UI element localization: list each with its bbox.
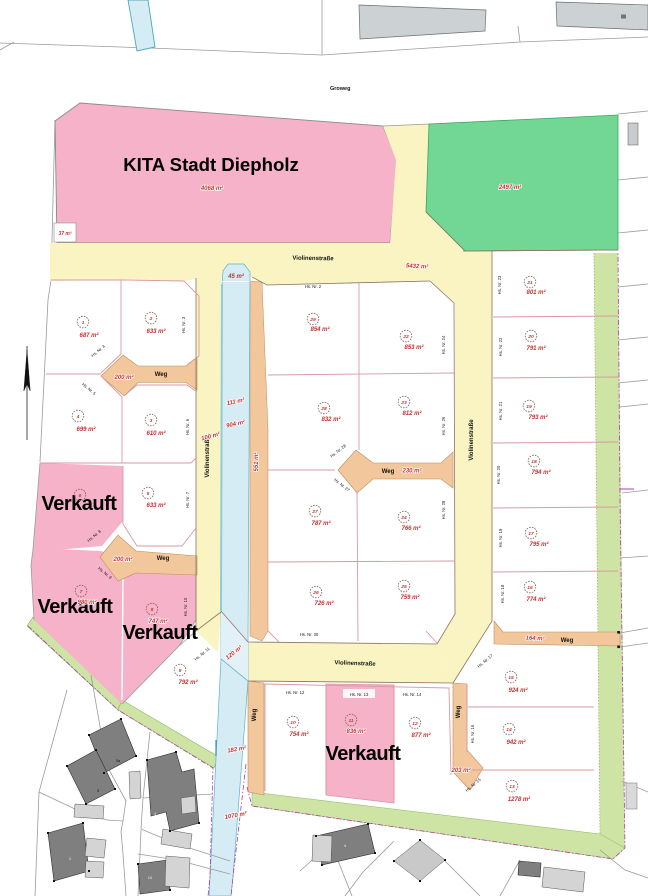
svg-text:25: 25 bbox=[400, 584, 407, 590]
svg-text:4: 4 bbox=[76, 414, 80, 420]
svg-text:980 m²: 980 m² bbox=[77, 599, 97, 606]
svg-text:8: 8 bbox=[151, 607, 154, 613]
svg-text:1278 m²: 1278 m² bbox=[508, 796, 531, 803]
svg-text:5: 5 bbox=[147, 491, 150, 497]
svg-text:Verkauft: Verkauft bbox=[123, 622, 199, 644]
svg-text:Weg: Weg bbox=[157, 556, 170, 562]
svg-text:Hs. Nr. 2: Hs. Nr. 2 bbox=[305, 284, 322, 289]
svg-text:27: 27 bbox=[311, 509, 318, 515]
svg-text:Hs. Nr. 23: Hs. Nr. 23 bbox=[497, 275, 502, 294]
svg-text:791 m²: 791 m² bbox=[526, 345, 546, 352]
svg-text:Weg: Weg bbox=[155, 372, 168, 378]
svg-text:10: 10 bbox=[148, 875, 153, 880]
svg-text:18: 18 bbox=[531, 459, 537, 465]
svg-text:20: 20 bbox=[527, 334, 534, 340]
svg-text:Hs. Nr. 7: Hs. Nr. 7 bbox=[185, 491, 190, 508]
svg-text:633 m²: 633 m² bbox=[146, 328, 166, 335]
svg-text:6: 6 bbox=[79, 493, 82, 499]
svg-text:Weg: Weg bbox=[456, 705, 462, 718]
svg-text:Hs. Nr. 30: Hs. Nr. 30 bbox=[300, 632, 319, 637]
svg-text:832 m²: 832 m² bbox=[321, 416, 341, 423]
svg-text:13: 13 bbox=[509, 784, 515, 790]
svg-text:854 m²: 854 m² bbox=[310, 326, 330, 333]
svg-text:795 m²: 795 m² bbox=[529, 541, 549, 548]
svg-text:633 m²: 633 m² bbox=[146, 502, 166, 509]
svg-text:2: 2 bbox=[149, 316, 153, 322]
svg-text:24: 24 bbox=[400, 515, 407, 521]
svg-text:812 m²: 812 m² bbox=[402, 410, 422, 417]
svg-text:766 m²: 766 m² bbox=[401, 525, 421, 532]
svg-text:877 m²: 877 m² bbox=[411, 732, 431, 739]
svg-text:11: 11 bbox=[348, 718, 353, 724]
svg-text:Hs. Nr. 20: Hs. Nr. 20 bbox=[496, 465, 501, 484]
svg-text:787 m²: 787 m² bbox=[311, 520, 331, 527]
svg-text:26: 26 bbox=[312, 590, 319, 596]
svg-text:Weg: Weg bbox=[382, 469, 395, 475]
svg-text:14: 14 bbox=[506, 727, 512, 733]
svg-text:45 m²: 45 m² bbox=[227, 273, 245, 280]
svg-text:853 m²: 853 m² bbox=[404, 344, 424, 351]
svg-text:9: 9 bbox=[179, 668, 182, 674]
svg-text:200 m²: 200 m² bbox=[112, 556, 133, 563]
svg-text:17: 17 bbox=[528, 531, 534, 537]
svg-text:754 m²: 754 m² bbox=[289, 731, 309, 738]
svg-text:Hs. Nr. 3: Hs. Nr. 3 bbox=[181, 316, 186, 333]
svg-text:19: 19 bbox=[526, 404, 532, 410]
svg-text:200 m²: 200 m² bbox=[113, 374, 134, 381]
svg-text:Verkauft: Verkauft bbox=[326, 743, 402, 765]
svg-text:Hs. Nr. 22: Hs. Nr. 22 bbox=[498, 337, 503, 356]
svg-text:924 m²: 924 m² bbox=[508, 687, 528, 694]
svg-text:10: 10 bbox=[290, 720, 296, 726]
svg-text:Violinenstraße: Violinenstraße bbox=[292, 256, 334, 263]
svg-text:KITA Stadt Diepholz: KITA Stadt Diepholz bbox=[123, 154, 299, 175]
svg-text:Hs. Nr. 18: Hs. Nr. 18 bbox=[500, 584, 505, 603]
svg-text:Hs. Nr. 6: Hs. Nr. 6 bbox=[185, 418, 190, 435]
svg-text:21: 21 bbox=[526, 280, 533, 286]
svg-text:Verkauft: Verkauft bbox=[38, 596, 114, 618]
svg-text:747 m²: 747 m² bbox=[148, 618, 168, 625]
svg-text:28: 28 bbox=[320, 406, 327, 412]
svg-text:23: 23 bbox=[400, 400, 407, 406]
svg-text:4068 m²: 4068 m² bbox=[200, 185, 224, 192]
svg-text:Hs. Nr. 16: Hs. Nr. 16 bbox=[470, 724, 475, 743]
svg-text:551 m²: 551 m² bbox=[253, 451, 260, 471]
svg-text:610 m²: 610 m² bbox=[146, 430, 166, 437]
svg-text:Groweg: Groweg bbox=[330, 86, 350, 92]
svg-text:794 m²: 794 m² bbox=[531, 469, 551, 476]
svg-text:792 m²: 792 m² bbox=[178, 679, 198, 686]
svg-text:3a: 3a bbox=[116, 758, 121, 763]
svg-text:836 m²: 836 m² bbox=[346, 728, 366, 735]
svg-text:Hs. Nr. 12: Hs. Nr. 12 bbox=[286, 690, 305, 695]
svg-text:Hs. Nr. 10: Hs. Nr. 10 bbox=[183, 597, 188, 616]
svg-text:203 m²: 203 m² bbox=[450, 767, 471, 774]
svg-text:Hs. Nr. 14: Hs. Nr. 14 bbox=[403, 692, 422, 697]
svg-text:801 m²: 801 m² bbox=[526, 289, 546, 296]
svg-text:699 m²: 699 m² bbox=[76, 426, 96, 433]
svg-text:Hs. Nr. 21: Hs. Nr. 21 bbox=[498, 401, 503, 420]
svg-text:12: 12 bbox=[412, 721, 418, 727]
svg-text:687 m²: 687 m² bbox=[79, 332, 99, 339]
svg-text:793 m²: 793 m² bbox=[528, 414, 548, 421]
svg-text:2497 m²: 2497 m² bbox=[498, 184, 522, 191]
svg-text:942 m²: 942 m² bbox=[506, 739, 526, 746]
svg-text:164 m²: 164 m² bbox=[525, 635, 545, 643]
svg-text:759 m²: 759 m² bbox=[400, 594, 420, 601]
svg-text:Hs. Nr. 19: Hs. Nr. 19 bbox=[498, 528, 503, 547]
svg-text:774 m²: 774 m² bbox=[526, 596, 546, 603]
svg-text:7: 7 bbox=[80, 589, 83, 595]
svg-text:Violinenstraße: Violinenstraße bbox=[469, 419, 475, 461]
svg-text:Hs. Nr. 13: Hs. Nr. 13 bbox=[350, 692, 369, 697]
svg-text:Hs. Nr. 28: Hs. Nr. 28 bbox=[441, 500, 446, 519]
svg-text:Weg: Weg bbox=[252, 708, 258, 721]
svg-text:230 m²: 230 m² bbox=[401, 468, 422, 475]
svg-text:Weg: Weg bbox=[561, 638, 574, 644]
svg-text:726 m²: 726 m² bbox=[314, 600, 334, 607]
svg-text:Violinenstraße: Violinenstraße bbox=[205, 436, 211, 478]
svg-text:3: 3 bbox=[150, 418, 153, 424]
svg-text:1: 1 bbox=[82, 320, 85, 326]
svg-text:Hs. Nr. 26: Hs. Nr. 26 bbox=[441, 416, 446, 435]
svg-text:37 m²: 37 m² bbox=[58, 231, 71, 237]
svg-text:16: 16 bbox=[527, 585, 533, 591]
svg-text:29: 29 bbox=[309, 317, 316, 323]
svg-text:15: 15 bbox=[508, 675, 514, 681]
svg-text:Hs. Nr. 24: Hs. Nr. 24 bbox=[441, 335, 446, 354]
svg-text:22: 22 bbox=[402, 334, 409, 340]
svg-text:5432 m²: 5432 m² bbox=[406, 262, 430, 270]
